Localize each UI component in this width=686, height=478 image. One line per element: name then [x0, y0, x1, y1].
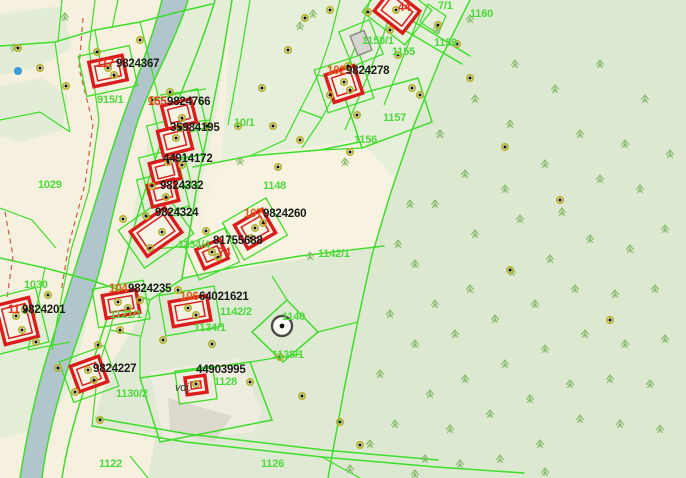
map-label-1157: 1157 [383, 112, 406, 124]
survey-point-dot [211, 251, 214, 254]
survey-point-dot [349, 151, 352, 154]
map-label-104: 104 [109, 283, 128, 295]
map-label-9824367: 9824367 [116, 58, 159, 70]
survey-point-dot [339, 421, 342, 424]
map-label-1155: 1155 [392, 46, 415, 58]
survey-point-dot [195, 314, 198, 317]
survey-point-dot [161, 231, 164, 234]
survey-point-dot [254, 227, 257, 230]
map-label-1126: 1126 [261, 458, 284, 470]
map-label-155: 155 [148, 96, 167, 108]
map-label-1121-1: 1121/1 [110, 309, 142, 321]
cadastral-map-viewport[interactable]: 1179824367155982476635984195449141729824… [0, 0, 686, 478]
survey-point-dot [205, 230, 208, 233]
well-marker-center [280, 324, 285, 329]
map-label-1130-2: 1130/2 [116, 388, 148, 400]
survey-point-dot [343, 81, 346, 84]
map-label-117: 117 [96, 58, 114, 70]
survey-point-dot [57, 367, 60, 370]
map-label-44914172: 44914172 [163, 153, 213, 165]
survey-point-dot [389, 29, 392, 32]
map-label-1134-1: 1134/1 [194, 322, 226, 334]
survey-point-dot [151, 185, 154, 188]
survey-point-dot [17, 47, 20, 50]
survey-point-dot [609, 319, 612, 322]
map-label-44903995: 44903995 [196, 364, 246, 376]
survey-point-dot [304, 17, 307, 20]
survey-point-dot [93, 379, 96, 382]
survey-point-dot [99, 419, 102, 422]
survey-point-dot [559, 199, 562, 202]
survey-point-dot [287, 49, 290, 52]
map-label-81755688: 81755688 [213, 235, 263, 247]
map-label-107: 107 [244, 208, 263, 220]
map-label-1142-1: 1142/1 [318, 248, 350, 260]
map-label-11: 11 [8, 304, 21, 316]
map-label-1122: 1122 [99, 458, 122, 470]
survey-point-dot [149, 247, 152, 250]
map-label-1029: 1029 [38, 179, 62, 191]
water-point-icon [14, 67, 22, 75]
map-label-1156: 1156 [354, 134, 377, 146]
survey-point-dot [87, 369, 90, 372]
map-label-1150-1: 1150/1 [362, 35, 394, 47]
survey-point-dot [169, 91, 172, 94]
map-label-9824260: 9824260 [263, 208, 306, 220]
map-label-102: 102 [327, 65, 346, 77]
map-label-106: 106 [180, 291, 199, 303]
survey-point-dot [504, 146, 507, 149]
survey-point-dot [329, 94, 332, 97]
map-label-44: 44 [398, 2, 411, 14]
survey-point-dot [96, 51, 99, 54]
map-label-9824235: 9824235 [128, 283, 172, 295]
map-label-1148: 1148 [263, 180, 286, 192]
map-label-9824227: 9824227 [93, 363, 136, 375]
survey-point-dot [97, 344, 100, 347]
survey-point-dot [165, 196, 168, 199]
survey-point-dot [437, 24, 440, 27]
survey-point-dot [249, 381, 252, 384]
survey-point-dot [139, 39, 142, 42]
survey-point-dot [262, 222, 265, 225]
map-label-9824324: 9824324 [155, 207, 199, 219]
survey-point-dot [65, 85, 68, 88]
survey-point-dot [272, 125, 275, 128]
survey-point-dot [359, 444, 362, 447]
survey-point-dot [47, 294, 50, 297]
survey-point-dot [411, 87, 414, 90]
survey-point-dot [145, 215, 148, 218]
survey-point-dot [117, 301, 120, 304]
survey-point-dot [113, 74, 116, 77]
survey-point-dot [39, 67, 42, 70]
survey-point-dot [175, 137, 178, 140]
survey-point-dot [74, 391, 77, 394]
survey-point-dot [277, 166, 280, 169]
survey-point-dot [187, 307, 190, 310]
map-label-10-1: 10/1 [234, 117, 255, 129]
survey-point-dot [211, 343, 214, 346]
survey-point-dot [509, 269, 512, 272]
survey-point-dot [35, 341, 38, 344]
map-label-1140: 1140 [282, 311, 305, 323]
map-label-vdj-: vdj. [175, 382, 191, 394]
survey-point-dot [122, 218, 125, 221]
survey-point-dot [299, 139, 302, 142]
map-label-1159: 1159 [434, 37, 457, 49]
map-label-1128: 1128 [214, 376, 237, 388]
map-label-1138-1: 1138/1 [272, 349, 304, 361]
survey-point-dot [181, 117, 184, 120]
map-label-1160: 1160 [470, 8, 493, 20]
map-label-9824332: 9824332 [160, 180, 203, 192]
survey-point-dot [119, 329, 122, 332]
survey-point-dot [367, 11, 370, 14]
map-label-35984195: 35984195 [170, 122, 220, 134]
cadastral-map-canvas[interactable]: 1179824367155982476635984195449141729824… [0, 0, 686, 478]
survey-point-dot [356, 114, 359, 117]
survey-point-dot [349, 89, 352, 92]
survey-point-dot [139, 299, 142, 302]
map-label-1142-2: 1142/2 [220, 306, 252, 318]
survey-point-dot [261, 87, 264, 90]
survey-point-dot [419, 94, 422, 97]
survey-point-dot [21, 329, 24, 332]
map-label-1030: 1030 [24, 279, 48, 291]
map-label-7-1: 7/1 [438, 0, 453, 12]
map-label-9824278: 9824278 [346, 65, 390, 77]
survey-point-dot [195, 383, 198, 386]
survey-point-dot [301, 395, 304, 398]
map-label-1134-4: 1134/4 [178, 239, 211, 251]
map-label-9824766: 9824766 [167, 96, 210, 108]
survey-point-dot [329, 9, 332, 12]
map-label-74: 74 [218, 247, 231, 259]
map-label-915-1: 915/1 [97, 94, 124, 106]
map-label-64021621: 64021621 [199, 291, 249, 303]
survey-point-dot [162, 339, 165, 342]
map-label-9824201: 9824201 [22, 304, 66, 316]
survey-point-dot [469, 77, 472, 80]
